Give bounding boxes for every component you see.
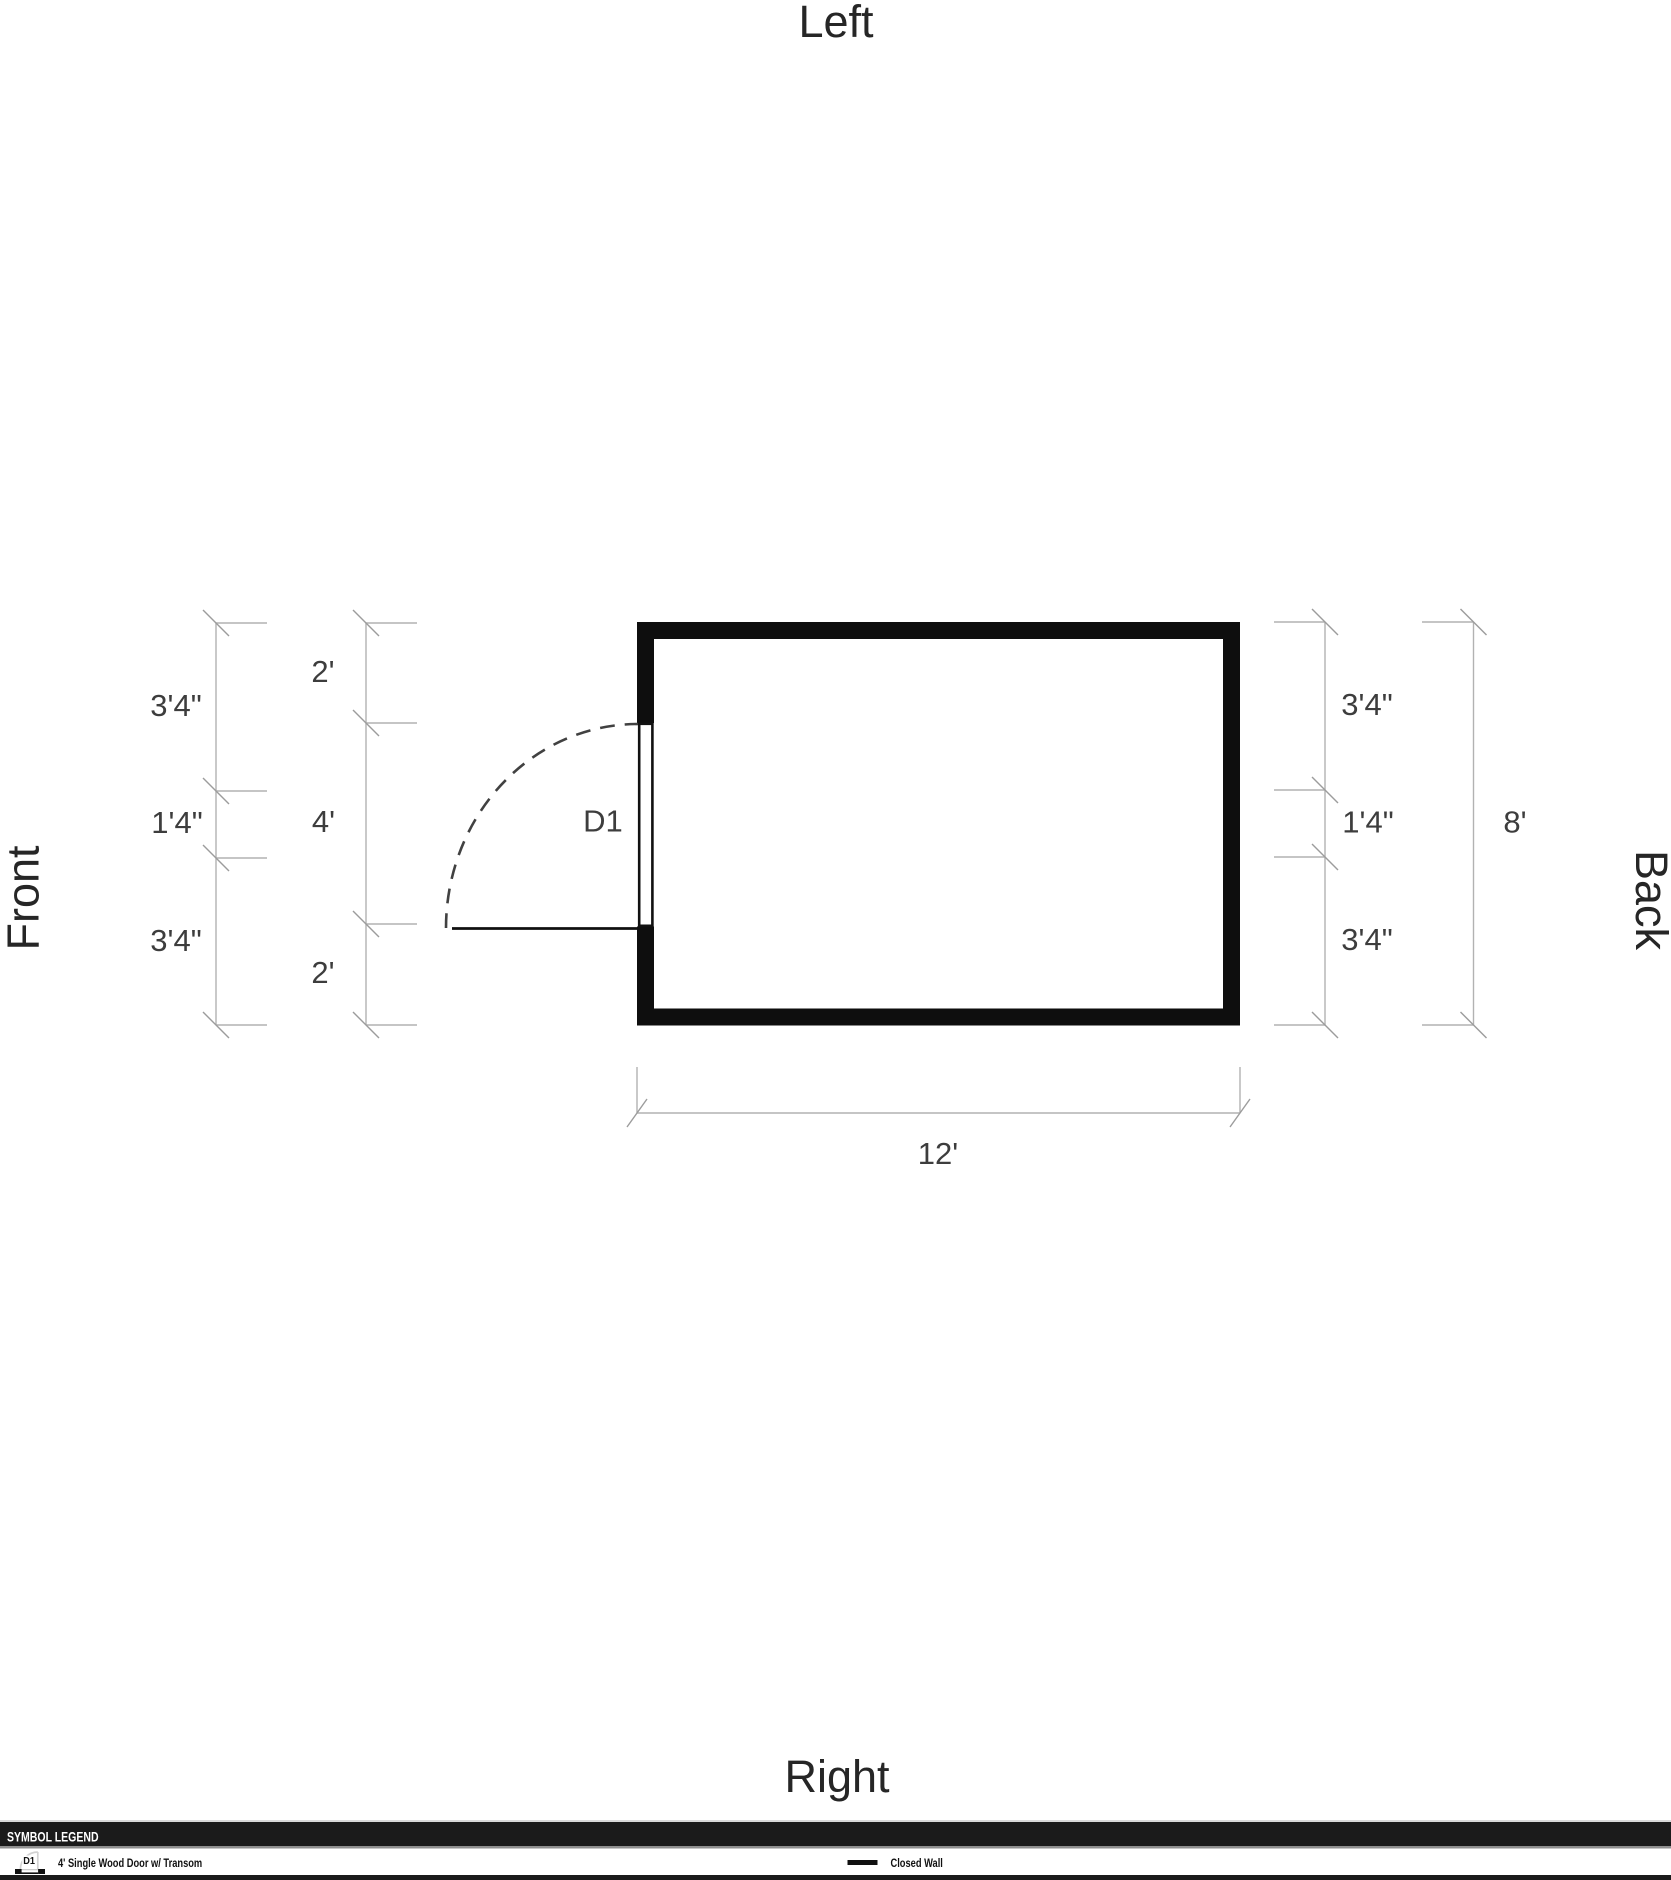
svg-text:12': 12'	[918, 1136, 958, 1171]
svg-text:SYMBOL LEGEND: SYMBOL LEGEND	[7, 1829, 99, 1845]
svg-text:D1: D1	[583, 804, 623, 839]
svg-text:3'4": 3'4"	[1341, 687, 1392, 722]
svg-text:D1: D1	[23, 1856, 35, 1868]
svg-text:4' Single Wood Door w/ Transom: 4' Single Wood Door w/ Transom	[58, 1858, 202, 1870]
svg-text:Left: Left	[798, 0, 874, 47]
svg-text:3'4": 3'4"	[150, 688, 201, 723]
svg-text:8': 8'	[1503, 805, 1526, 840]
svg-text:4': 4'	[312, 804, 335, 839]
svg-text:2': 2'	[311, 955, 334, 990]
svg-text:3'4": 3'4"	[150, 923, 201, 958]
svg-text:2': 2'	[311, 654, 334, 689]
svg-text:Front: Front	[0, 845, 49, 951]
svg-text:1'4": 1'4"	[1342, 805, 1393, 840]
svg-text:1'4": 1'4"	[151, 805, 202, 840]
svg-text:Closed Wall: Closed Wall	[891, 1858, 943, 1870]
svg-text:Back: Back	[1626, 850, 1671, 951]
svg-text:Right: Right	[784, 1751, 890, 1802]
svg-text:3'4": 3'4"	[1341, 922, 1392, 957]
